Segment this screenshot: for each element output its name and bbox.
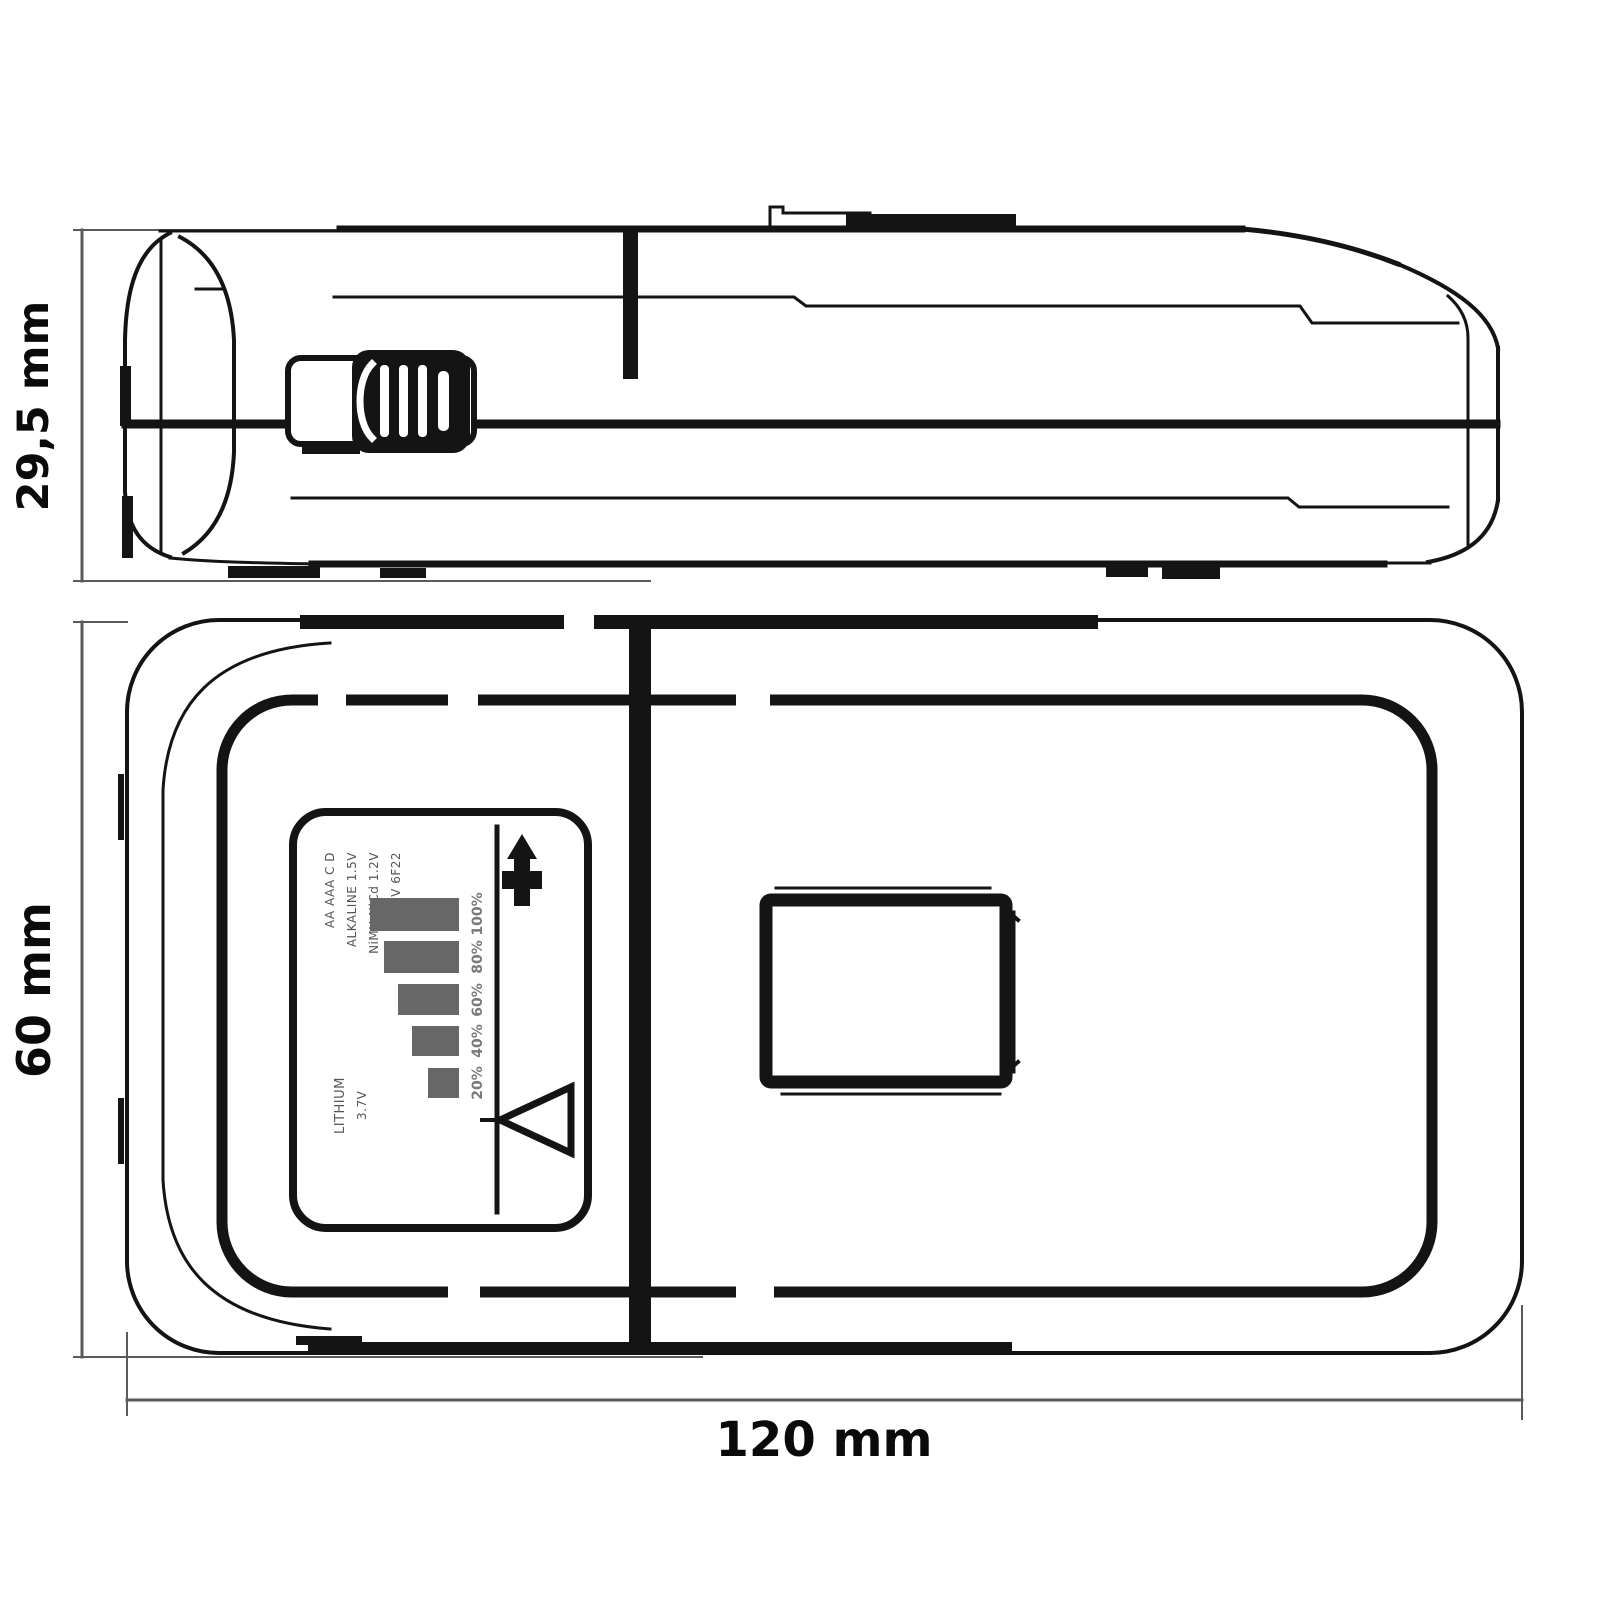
slider-knob-rib (399, 365, 408, 437)
slider-knob-rib (418, 365, 427, 437)
slider-switch-foot (302, 444, 360, 454)
device-foot (1106, 565, 1148, 577)
plan-bottom-edge-thick (308, 1342, 1012, 1355)
plan-left-notch (118, 1098, 124, 1164)
plan-top-edge-gap (564, 613, 594, 631)
panel-seam-gap (448, 1286, 480, 1298)
rating-label-outline (293, 812, 588, 1228)
latch-tab-pad (846, 214, 1016, 231)
dim-width-label: 120 mm (716, 1412, 933, 1468)
plan-left-notch (118, 774, 124, 840)
device-foot (380, 568, 426, 578)
drawing-svg: 29,5 mm (0, 0, 1600, 1600)
rating-label: AA AAA C D ALKALINE 1.5V NiMH NiCd 1.2V … (293, 812, 588, 1228)
bottom-edge (170, 558, 314, 564)
body-line-upper (334, 297, 1458, 323)
bar-percent-label: 40% (470, 1024, 486, 1058)
label-micro-text: LITHIUM (333, 1077, 348, 1134)
bar-percent-label: 100% (470, 892, 486, 935)
panel-seam-gap (318, 693, 346, 706)
side-view: 29,5 mm (9, 207, 1498, 581)
battery-bar (384, 941, 459, 973)
plan-top-edge-thick (300, 615, 1098, 629)
battery-bar (412, 1026, 459, 1056)
left-cap-face (180, 237, 234, 553)
bar-percent-label: 60% (470, 983, 486, 1017)
housing-seam (629, 620, 651, 1353)
dim-depth-label: 60 mm (7, 902, 61, 1078)
panel-seam-gap (448, 693, 478, 706)
battery-bar (398, 984, 459, 1015)
device-foot (1162, 567, 1220, 579)
top-right-slope (1242, 229, 1398, 264)
right-bottom-arc (1428, 500, 1498, 562)
label-micro-text: ALKALINE 1.5V (345, 852, 359, 947)
device-foot (228, 566, 320, 578)
bar-percent-label: 80% (470, 940, 486, 974)
label-micro-text: 3.7V (355, 1090, 369, 1120)
slider-knob-rib (380, 365, 389, 437)
battery-bar (428, 1068, 459, 1098)
left-cap-shade (122, 496, 133, 558)
battery-door-frame (766, 900, 1006, 1082)
battery-door (766, 888, 1018, 1094)
label-micro-text: AA AAA C D (323, 852, 337, 928)
plan-bottom-edge-thick (296, 1336, 362, 1345)
plan-view: AA AAA C D ALKALINE 1.5V NiMH NiCd 1.2V … (7, 613, 1522, 1468)
panel-seam-gap (736, 1286, 774, 1298)
body-line-lower (292, 498, 1448, 507)
battery-bar (370, 898, 459, 931)
right-cap-arc (1398, 264, 1498, 348)
label-micro-text: 9V 6F22 (389, 852, 403, 905)
left-cap-shade (120, 366, 131, 426)
housing-seam (623, 227, 638, 379)
bar-percent-label: 20% (470, 1066, 486, 1100)
technical-drawing-canvas: 29,5 mm (0, 0, 1600, 1600)
dim-height-label: 29,5 mm (9, 301, 59, 512)
slider-knob-rib (438, 371, 449, 431)
slider-switch (288, 350, 474, 454)
panel-seam-gap (736, 693, 770, 706)
